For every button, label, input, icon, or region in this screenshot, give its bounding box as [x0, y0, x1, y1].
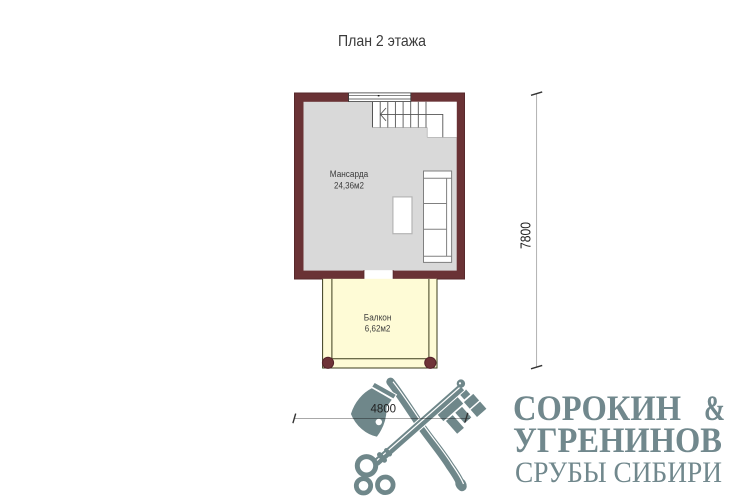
svg-text:24,36м2: 24,36м2 — [334, 180, 364, 191]
svg-text:4800: 4800 — [371, 404, 397, 416]
svg-text:УГРЕНИНОВ: УГРЕНИНОВ — [513, 420, 722, 460]
svg-text:СРУБЫ СИБИРИ: СРУБЫ СИБИРИ — [515, 456, 722, 489]
svg-text:6,62м2: 6,62м2 — [365, 323, 391, 334]
svg-text:Мансарда: Мансарда — [330, 169, 369, 180]
svg-text:7800: 7800 — [519, 222, 535, 249]
svg-text:План 2 этажа: План 2 этажа — [338, 33, 426, 50]
svg-text:Балкон: Балкон — [364, 312, 392, 323]
